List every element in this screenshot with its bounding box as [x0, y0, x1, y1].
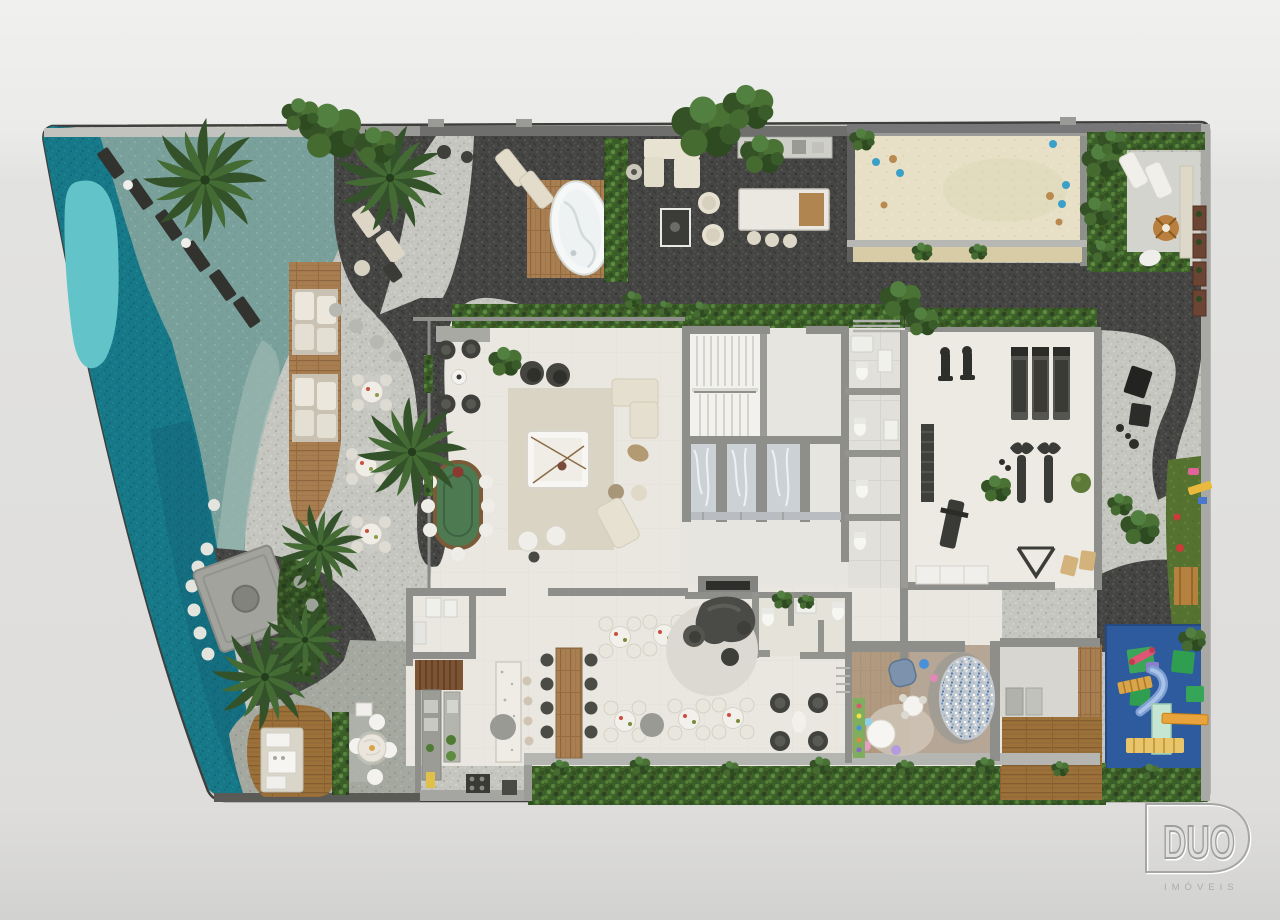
svg-text:DUO: DUO [1163, 817, 1235, 868]
svg-text:IMÓVEIS: IMÓVEIS [1164, 882, 1239, 893]
